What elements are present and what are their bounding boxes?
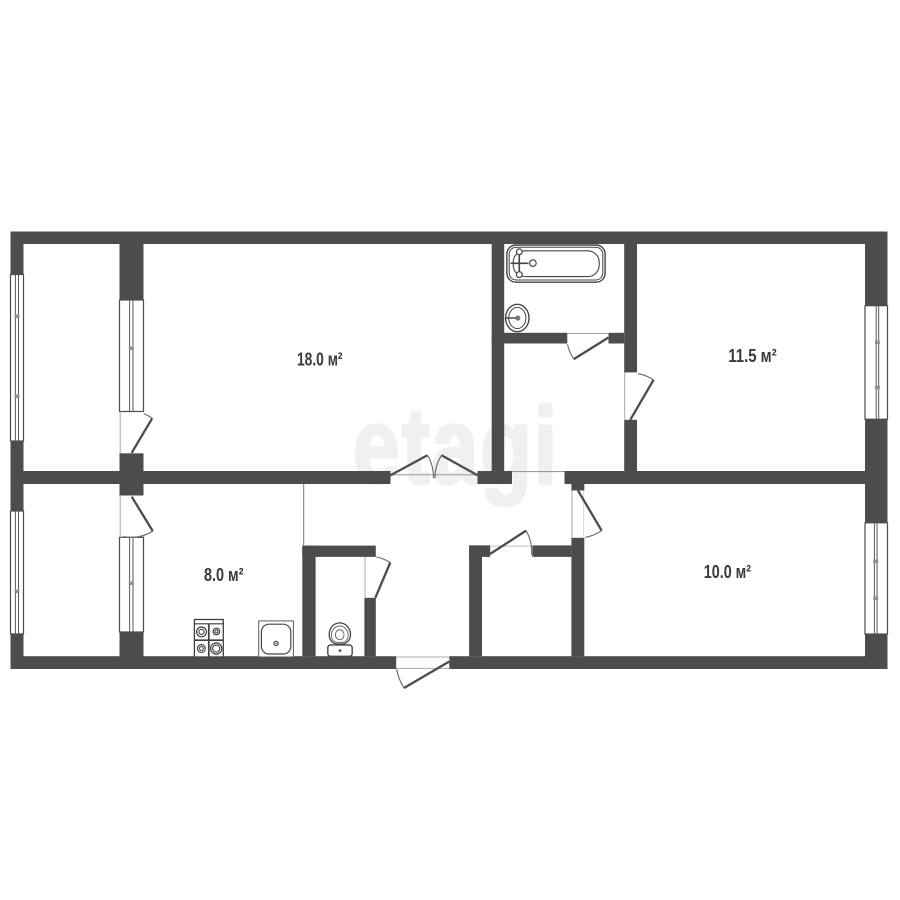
svg-text:8.0 м²: 8.0 м² — [204, 564, 244, 585]
svg-text:etagi: etagi — [353, 387, 559, 506]
svg-text:18.0 м²: 18.0 м² — [297, 348, 343, 369]
svg-text:11.5 м²: 11.5 м² — [728, 345, 776, 366]
svg-text:10.0 м²: 10.0 м² — [704, 561, 751, 582]
